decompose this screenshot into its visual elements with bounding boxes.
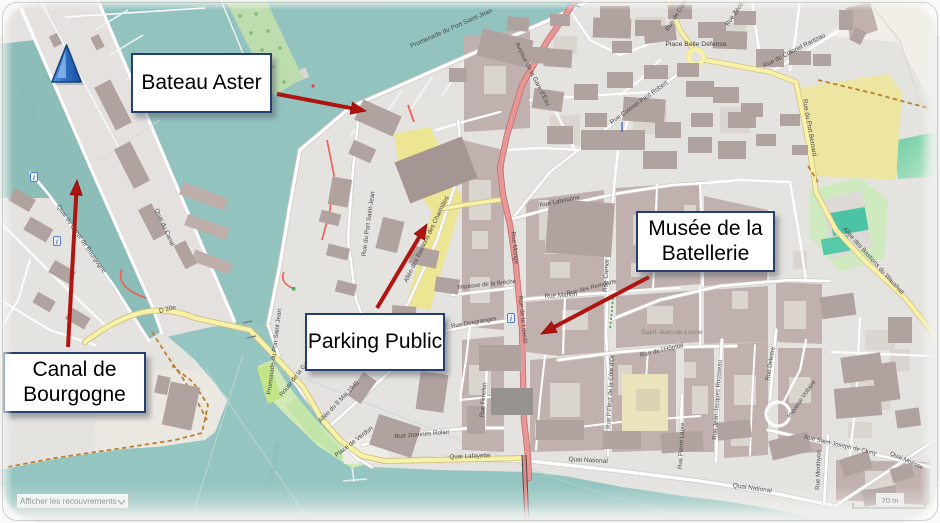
svg-text:70 m: 70 m — [882, 496, 899, 505]
